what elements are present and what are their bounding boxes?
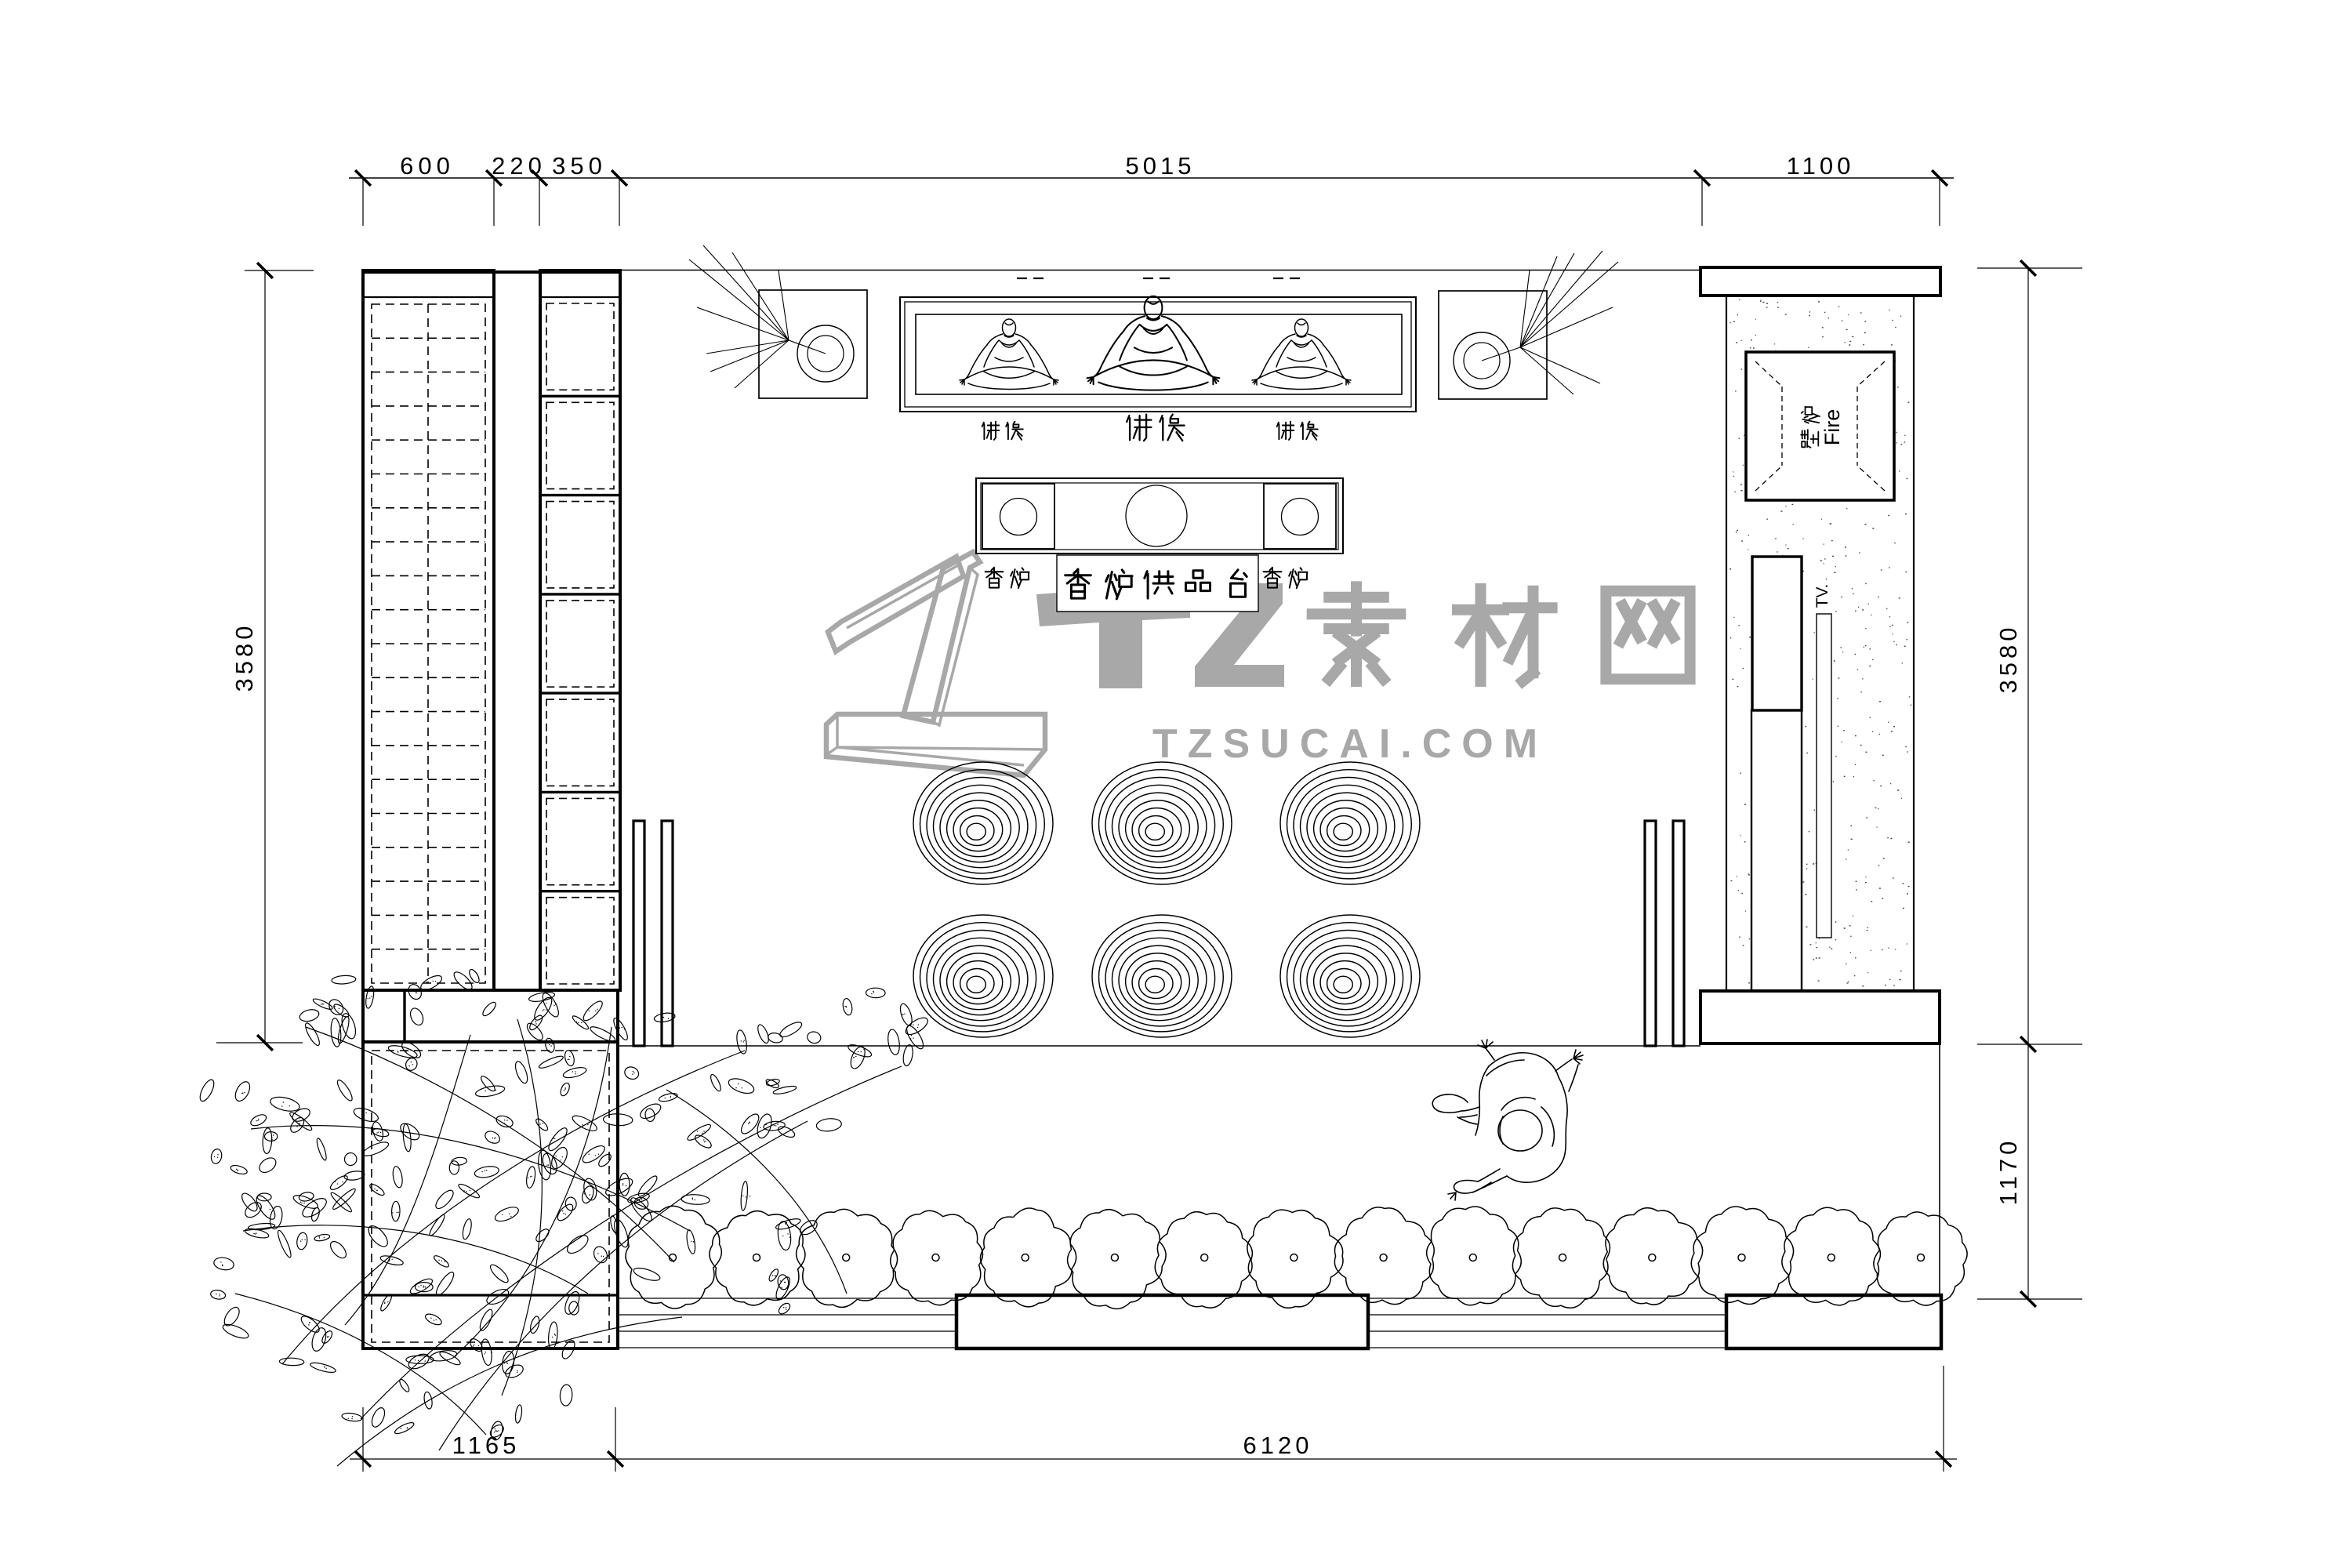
svg-text:Fire: Fire xyxy=(1820,409,1844,446)
svg-text:3580: 3580 xyxy=(230,622,258,692)
svg-text:220: 220 xyxy=(492,152,546,180)
svg-text:5015: 5015 xyxy=(1126,152,1196,180)
svg-text:1100: 1100 xyxy=(1787,152,1855,180)
svg-text:6120: 6120 xyxy=(1243,1432,1313,1459)
svg-text:600: 600 xyxy=(400,152,455,180)
svg-text:1170: 1170 xyxy=(1994,1138,2022,1206)
svg-text:1165: 1165 xyxy=(452,1432,521,1459)
svg-text:350: 350 xyxy=(552,152,607,180)
svg-text:TV.: TV. xyxy=(1813,584,1831,608)
svg-text:TZSUCAI.COM: TZSUCAI.COM xyxy=(1152,721,1548,767)
svg-text:3580: 3580 xyxy=(1994,624,2022,694)
